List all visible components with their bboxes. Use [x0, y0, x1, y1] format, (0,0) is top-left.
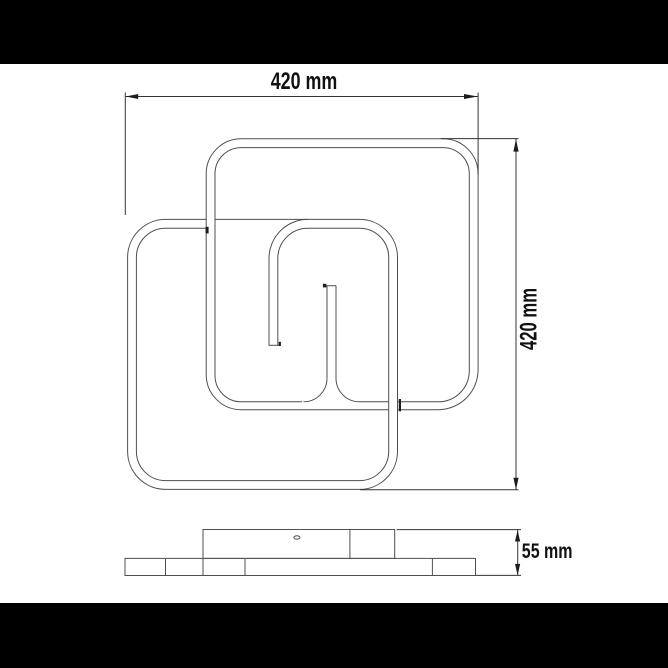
svg-text:55 mm: 55 mm — [522, 540, 573, 564]
svg-text:420 mm: 420 mm — [515, 288, 542, 350]
svg-text:420 mm: 420 mm — [271, 69, 338, 95]
